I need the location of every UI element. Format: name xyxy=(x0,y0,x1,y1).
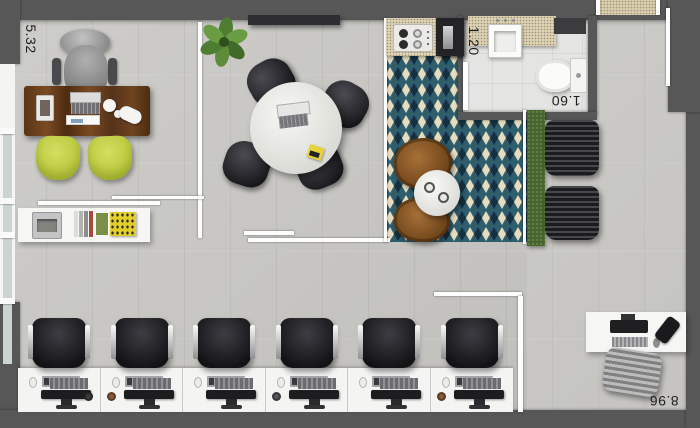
keyboard-logo xyxy=(209,378,214,385)
wall-bottom xyxy=(0,410,700,428)
meeting-table xyxy=(250,82,342,174)
cup xyxy=(438,192,449,203)
mug xyxy=(272,392,281,401)
laptop-screen xyxy=(70,92,101,103)
wall-top-left xyxy=(0,0,20,64)
book xyxy=(84,211,88,237)
workstation-desk-row xyxy=(18,368,513,412)
monitor-base xyxy=(139,405,160,409)
workstation xyxy=(431,368,514,412)
plant xyxy=(196,16,252,68)
office-chair xyxy=(115,318,169,368)
keyboard xyxy=(290,376,328,387)
mouse xyxy=(112,377,120,388)
chair-armrest xyxy=(498,325,503,359)
keyboard xyxy=(372,376,410,387)
magazine xyxy=(110,212,136,236)
coffee-table xyxy=(414,170,460,216)
reception-partition-h xyxy=(434,292,522,296)
burner xyxy=(413,40,422,49)
office-partition xyxy=(38,201,160,205)
printer xyxy=(32,212,62,239)
knob xyxy=(427,37,429,39)
window-mullion xyxy=(0,298,15,304)
plate xyxy=(103,99,116,112)
dimension-label-bathroom-width: 1.20 xyxy=(466,23,482,59)
mouse xyxy=(359,377,367,388)
slat-lounge-chair xyxy=(545,120,599,176)
sink xyxy=(488,24,522,58)
coffee-station xyxy=(436,18,464,56)
monitor xyxy=(124,390,174,399)
monitor-base xyxy=(221,405,242,409)
chair-armrest xyxy=(415,325,420,359)
chair-armrest xyxy=(250,325,255,359)
monitor-base xyxy=(56,405,77,409)
documents xyxy=(66,115,100,125)
meeting-room-sliding-door xyxy=(244,231,294,235)
burner xyxy=(399,40,408,49)
window-wall xyxy=(0,64,15,304)
keyboard-logo xyxy=(127,378,132,385)
meeting-room-glass-bottom xyxy=(248,238,390,242)
desk-organizer xyxy=(36,95,54,121)
knob xyxy=(427,31,429,33)
faucet xyxy=(504,19,507,22)
workstation xyxy=(18,368,101,412)
wall-niche xyxy=(554,18,586,34)
keyboard xyxy=(455,376,493,387)
chair-armrest xyxy=(28,325,33,359)
hedge xyxy=(527,110,545,246)
keyboard-logo xyxy=(457,378,462,385)
chair-armrest xyxy=(276,325,281,359)
burner xyxy=(399,29,408,38)
office-chair xyxy=(197,318,251,368)
cup xyxy=(424,182,435,193)
slat-lounge-chair xyxy=(545,186,599,240)
monitor xyxy=(289,390,339,399)
faucet xyxy=(496,19,499,22)
chair-armrest xyxy=(85,325,90,359)
keyboard xyxy=(125,376,163,387)
window-mullion xyxy=(0,232,15,238)
keyboard-logo xyxy=(374,378,379,385)
workstation xyxy=(348,368,431,412)
workstation xyxy=(266,368,349,412)
office-chair xyxy=(362,318,416,368)
office-chair xyxy=(445,318,499,368)
chair-armrest xyxy=(441,325,446,359)
workstation xyxy=(101,368,184,412)
monitor-base xyxy=(469,405,490,409)
monitor xyxy=(206,390,256,399)
lounge-glass-wall xyxy=(523,110,526,244)
chair-armrest xyxy=(193,325,198,359)
office-chair xyxy=(280,318,334,368)
knob xyxy=(427,43,429,45)
bathroom-wall-right xyxy=(588,16,597,114)
doormat xyxy=(600,0,656,15)
reception-monitor xyxy=(610,320,648,333)
window-mullion xyxy=(0,198,15,204)
book xyxy=(74,211,78,237)
chair-armrest xyxy=(358,325,363,359)
keyboard xyxy=(207,376,245,387)
mouse xyxy=(277,377,285,388)
office-chair xyxy=(32,318,86,368)
dimension-label-bottom: 8.96 xyxy=(646,393,682,409)
keyboard xyxy=(42,376,80,387)
office-partition-panel xyxy=(112,196,204,199)
reception-keyboard xyxy=(612,337,648,347)
book xyxy=(96,213,108,235)
faucet xyxy=(512,19,515,22)
sideboard xyxy=(248,15,340,25)
chair-armrest xyxy=(52,58,61,85)
mug xyxy=(437,392,446,401)
chair-armrest xyxy=(108,58,117,85)
mug xyxy=(84,392,93,401)
laptop-keyboard xyxy=(71,103,100,114)
book xyxy=(89,211,93,237)
window-mullion xyxy=(0,128,15,134)
mouse xyxy=(194,377,202,388)
dimension-label-bathroom-height: 1.60 xyxy=(548,93,584,109)
mouse xyxy=(442,377,450,388)
floor-plan: 5.32 1.20 1.60 8.96 xyxy=(0,0,700,428)
coffee-machine xyxy=(443,26,453,49)
keyboard-logo xyxy=(44,378,49,385)
entrance-door-jamb xyxy=(596,0,600,15)
mouse xyxy=(29,377,37,388)
window-glass xyxy=(3,132,12,364)
monitor xyxy=(454,390,504,399)
burner xyxy=(413,29,422,38)
reception-chair xyxy=(601,346,663,398)
book xyxy=(79,211,83,237)
toilet-tank xyxy=(570,58,587,93)
dimension-label-left: 5.32 xyxy=(23,21,39,57)
keyboard-logo xyxy=(292,378,297,385)
entrance-door-frame xyxy=(666,8,670,86)
monitor xyxy=(371,390,421,399)
toilet xyxy=(536,60,574,92)
reception-partition-v xyxy=(518,296,523,412)
wall-top-right xyxy=(668,0,700,112)
chair-armrest xyxy=(333,325,338,359)
monitor-base xyxy=(386,405,407,409)
chair-armrest xyxy=(168,325,173,359)
mug xyxy=(107,392,116,401)
cooktop xyxy=(393,24,433,52)
entrance-door-jamb xyxy=(656,0,660,15)
chair-armrest xyxy=(111,325,116,359)
bathroom-door xyxy=(463,62,468,110)
monitor-base xyxy=(304,405,325,409)
guest-chair xyxy=(35,135,81,181)
workstation xyxy=(183,368,266,412)
